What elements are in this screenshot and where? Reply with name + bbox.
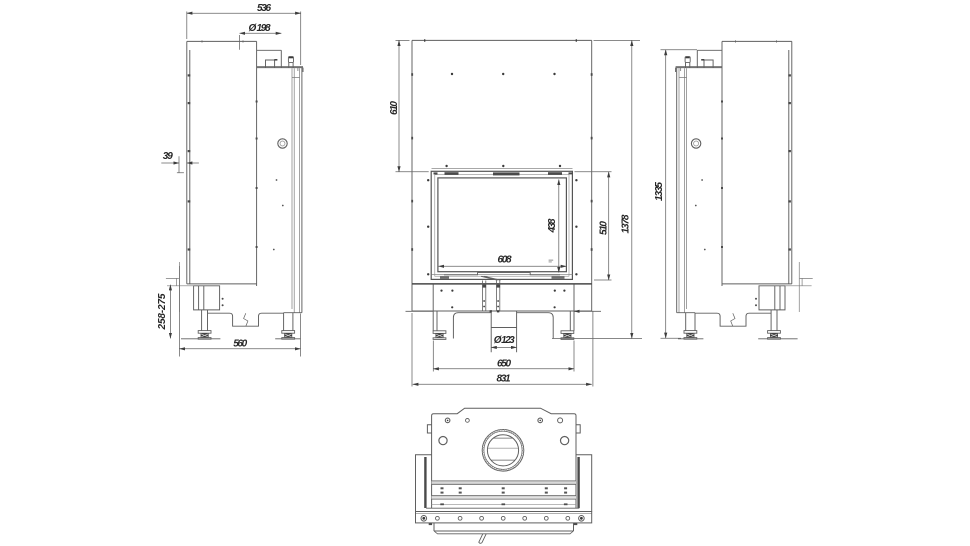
svg-text:610: 610 bbox=[389, 101, 400, 115]
svg-text:39: 39 bbox=[163, 151, 173, 162]
svg-text:510: 510 bbox=[598, 221, 609, 235]
svg-text:650: 650 bbox=[497, 358, 511, 369]
svg-text:536: 536 bbox=[257, 3, 271, 14]
svg-text:831: 831 bbox=[497, 373, 511, 384]
svg-text:438: 438 bbox=[547, 218, 558, 233]
svg-text:Ø 123: Ø 123 bbox=[494, 335, 515, 346]
svg-text:1378: 1378 bbox=[620, 214, 631, 233]
svg-text:608: 608 bbox=[498, 255, 512, 266]
svg-text:560: 560 bbox=[233, 338, 247, 349]
svg-text:Ø 198: Ø 198 bbox=[249, 23, 271, 34]
svg-text:1335: 1335 bbox=[654, 182, 665, 201]
svg-text:258-275: 258-275 bbox=[157, 293, 168, 330]
